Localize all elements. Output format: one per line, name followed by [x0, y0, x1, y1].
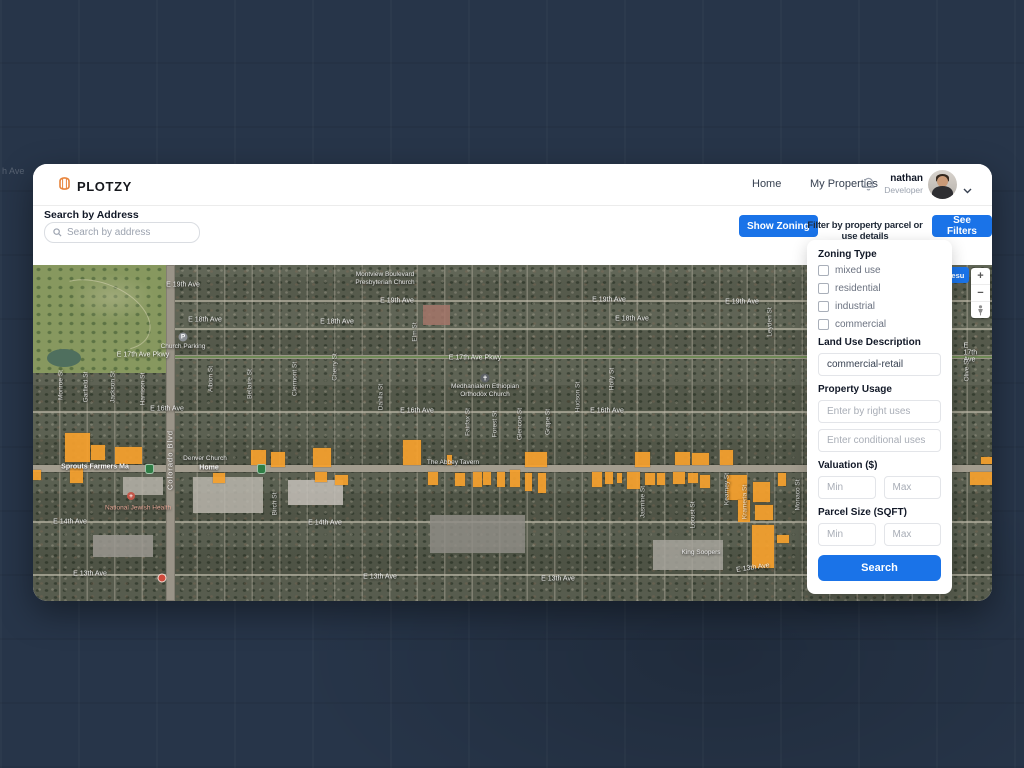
- property-usage-label: Property Usage: [818, 384, 941, 396]
- land-use-label: Land Use Description: [818, 337, 941, 349]
- zoning-parcel[interactable]: [33, 470, 41, 480]
- state-highway-shield-icon: [257, 464, 266, 474]
- page: { "brand": { "name": "PLOTZY" }, "nav": …: [0, 0, 1024, 768]
- zoning-parcel[interactable]: [455, 473, 465, 486]
- zoning-options: mixed useresidentialindustrialcommercial: [818, 265, 941, 329]
- zoning-parcel[interactable]: [635, 452, 650, 467]
- map-road-colorado-blvd: [166, 265, 175, 601]
- zoning-parcel[interactable]: [657, 473, 665, 485]
- zoning-parcel[interactable]: [675, 452, 690, 465]
- zoning-option-label: mixed use: [835, 265, 881, 276]
- zoning-parcel[interactable]: [617, 473, 622, 483]
- filter-caption: Filter by property parcel or use details: [799, 220, 931, 242]
- parcel-size-label: Parcel Size (SQFT): [818, 507, 941, 519]
- brand-name: PLOTZY: [77, 179, 132, 194]
- filters-search-button[interactable]: Search: [818, 555, 941, 581]
- zoning-parcel[interactable]: [700, 475, 710, 488]
- zoning-parcel[interactable]: [315, 472, 327, 482]
- zoning-type-label: Zoning Type: [818, 249, 941, 261]
- see-filters-button[interactable]: See Filters: [932, 215, 992, 237]
- street-view-pegman-icon[interactable]: [971, 302, 990, 318]
- zoning-parcel[interactable]: [538, 473, 546, 493]
- zoning-option-residential[interactable]: residential: [818, 283, 941, 293]
- zoning-parcel[interactable]: [645, 473, 655, 485]
- plotzy-logo-icon: [57, 176, 72, 196]
- zoning-option-industrial[interactable]: industrial: [818, 301, 941, 311]
- address-search-input[interactable]: Search by address: [44, 222, 200, 243]
- zoning-parcel[interactable]: [981, 457, 992, 464]
- zoning-parcel[interactable]: [525, 473, 532, 491]
- zoning-parcel[interactable]: [778, 473, 786, 486]
- church-icon: ✝: [481, 374, 490, 383]
- user-role: Developer: [879, 185, 923, 195]
- conditional-uses-input[interactable]: [818, 429, 941, 452]
- zoning-parcel[interactable]: [777, 535, 789, 543]
- park-lake: [47, 349, 81, 367]
- zoning-option-commercial[interactable]: commercial: [818, 319, 941, 329]
- zoning-option-label: residential: [835, 283, 881, 294]
- zoning-parcel[interactable]: [525, 452, 547, 467]
- zoning-parcel[interactable]: [738, 500, 750, 522]
- zoom-in-button[interactable]: +: [971, 268, 990, 285]
- checkbox-icon[interactable]: [818, 301, 829, 312]
- zoning-parcel[interactable]: [510, 470, 520, 487]
- zoning-parcel[interactable]: [605, 472, 613, 484]
- checkbox-icon[interactable]: [818, 319, 829, 330]
- zoning-parcel[interactable]: [688, 473, 698, 483]
- zoning-parcel[interactable]: [271, 452, 285, 467]
- chevron-down-icon[interactable]: [963, 181, 972, 199]
- notifications-bell-icon[interactable]: [861, 176, 876, 197]
- zoning-parcel[interactable]: [251, 450, 266, 465]
- parcel-min-input[interactable]: [818, 523, 876, 546]
- zoning-parcel[interactable]: [592, 472, 602, 487]
- brand-logo[interactable]: PLOTZY: [57, 176, 132, 196]
- zoning-parcel[interactable]: [403, 440, 421, 465]
- zoning-parcel[interactable]: [720, 450, 733, 465]
- zoning-parcel[interactable]: [497, 472, 505, 487]
- hospital-icon: +: [127, 492, 135, 500]
- zoning-parcel[interactable]: [91, 445, 105, 460]
- valuation-max-input[interactable]: [884, 476, 942, 499]
- by-right-uses-input[interactable]: [818, 400, 941, 423]
- user-name: nathan: [879, 173, 923, 185]
- parcel-max-input[interactable]: [884, 523, 942, 546]
- zoning-parcel[interactable]: [627, 472, 640, 489]
- zoning-parcel[interactable]: [752, 525, 774, 568]
- zoning-parcel[interactable]: [692, 453, 709, 465]
- zoning-parcel[interactable]: [70, 468, 83, 483]
- zoning-parcel[interactable]: [335, 475, 348, 485]
- poi-marker-icon: [158, 574, 167, 583]
- zoning-parcel[interactable]: [673, 472, 685, 484]
- zoning-parcel[interactable]: [727, 475, 747, 500]
- city-park-area: [33, 265, 166, 373]
- zoom-out-button[interactable]: −: [971, 285, 990, 302]
- nav-home-link[interactable]: Home: [752, 178, 781, 190]
- background-ghost-street-label: h Ave: [2, 166, 24, 176]
- zoning-parcel[interactable]: [115, 447, 142, 464]
- zoning-option-label: industrial: [835, 301, 875, 312]
- zoning-parcel[interactable]: [65, 433, 90, 462]
- state-highway-shield-icon: [145, 464, 154, 474]
- zoning-parcel[interactable]: [428, 472, 438, 485]
- parking-icon: P: [179, 333, 188, 342]
- zoning-option-label: commercial: [835, 319, 886, 330]
- zoning-parcel[interactable]: [313, 448, 331, 467]
- header: PLOTZY Home My Properties nathan Develop…: [33, 164, 992, 206]
- checkbox-icon[interactable]: [818, 283, 829, 294]
- user-info[interactable]: nathan Developer: [879, 173, 923, 195]
- zoning-parcel[interactable]: [753, 482, 770, 502]
- app-window: PLOTZY Home My Properties nathan Develop…: [33, 164, 992, 601]
- zoning-parcel[interactable]: [213, 473, 225, 483]
- valuation-min-input[interactable]: [818, 476, 876, 499]
- zoning-parcel[interactable]: [755, 505, 773, 520]
- search-placeholder: Search by address: [67, 227, 150, 238]
- zoning-option-mixed-use[interactable]: mixed use: [818, 265, 941, 275]
- zoning-parcel[interactable]: [970, 472, 992, 485]
- zoning-parcel[interactable]: [447, 455, 452, 465]
- search-by-address-label: Search by Address: [44, 209, 139, 221]
- map-zoom-control: + −: [971, 268, 990, 318]
- zoning-parcel[interactable]: [473, 472, 482, 487]
- land-use-input[interactable]: [818, 353, 941, 376]
- avatar[interactable]: [928, 170, 957, 199]
- checkbox-icon[interactable]: [818, 265, 829, 276]
- filters-panel: Zoning Type mixed useresidentialindustri…: [807, 240, 952, 594]
- search-icon: [53, 224, 62, 242]
- valuation-label: Valuation ($): [818, 460, 941, 472]
- zoning-parcel[interactable]: [483, 472, 491, 485]
